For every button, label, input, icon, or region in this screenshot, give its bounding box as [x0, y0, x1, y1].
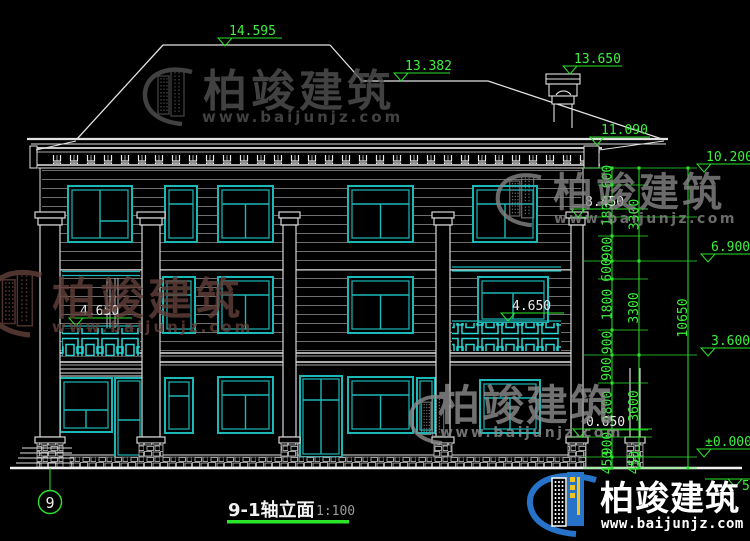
window — [218, 377, 273, 433]
dim-text: 450 — [628, 451, 643, 474]
level-text: 4.650 — [512, 299, 551, 314]
axis-label: 9 — [45, 494, 54, 512]
watermark-url: www.baijunjz.com — [554, 211, 737, 227]
dim-text: 900 — [600, 357, 615, 380]
level-text: 10.200 — [706, 150, 750, 165]
window — [348, 186, 413, 242]
window — [68, 186, 132, 242]
level-text: ±0.000 — [705, 435, 750, 450]
watermark-brand: 柏竣建筑 — [438, 381, 614, 430]
watermark-url: www.baijunjz.com — [52, 318, 253, 336]
cad-elevation-screenshot: 600 1800 900 600 1800 900 900 1800 900 4… — [0, 0, 750, 541]
level-text: 6.900 — [711, 240, 750, 255]
balcony-railing-lattice — [452, 323, 561, 351]
dim-text: 3300 — [627, 292, 642, 323]
dim-text: 900 — [601, 237, 616, 260]
company-name: 柏竣建筑 — [600, 479, 740, 519]
dentil-band — [50, 155, 596, 164]
stone-plinth — [70, 457, 581, 468]
watermark-url: www.baijunjz.com — [202, 108, 403, 126]
level-text: 13.650 — [574, 52, 621, 67]
entry-door — [300, 376, 342, 457]
window — [60, 378, 112, 432]
window — [348, 377, 413, 433]
window — [218, 186, 273, 242]
balcony-right — [452, 321, 561, 351]
window — [165, 378, 193, 433]
elevation-drawing-canvas: 600 1800 900 600 1800 900 900 1800 900 4… — [0, 0, 750, 541]
level-text: 14.595 — [229, 24, 276, 39]
pilaster — [35, 212, 65, 468]
dim-text: 1800 — [601, 289, 616, 320]
level-text: 50 — [742, 479, 750, 494]
dim-total-text: 10650 — [676, 298, 691, 337]
drawing-title: 9-1轴立面 — [228, 499, 315, 521]
watermark-url: www.baijunjz.com — [440, 425, 623, 441]
dim-text: 900 — [601, 331, 616, 354]
watermark-brand: 柏竣建筑 — [553, 170, 725, 216]
window — [348, 277, 413, 333]
level-text: 11.090 — [601, 123, 648, 138]
drawing-scale: 1:100 — [316, 504, 355, 519]
dim-text: 3600 — [627, 390, 642, 421]
window — [165, 186, 197, 242]
dim-text: 450 — [601, 451, 616, 474]
title-underline — [227, 520, 349, 524]
level-text: 13.382 — [405, 59, 452, 74]
level-text: 3.600 — [711, 334, 750, 349]
watermark-bottom: 柏竣建筑 www.baijunjz.com — [411, 381, 623, 443]
company-url: www.baijunjz.com — [601, 516, 744, 532]
footer-logo: 柏竣建筑 www.baijunjz.com — [530, 472, 744, 534]
dim-text: 600 — [600, 258, 615, 281]
